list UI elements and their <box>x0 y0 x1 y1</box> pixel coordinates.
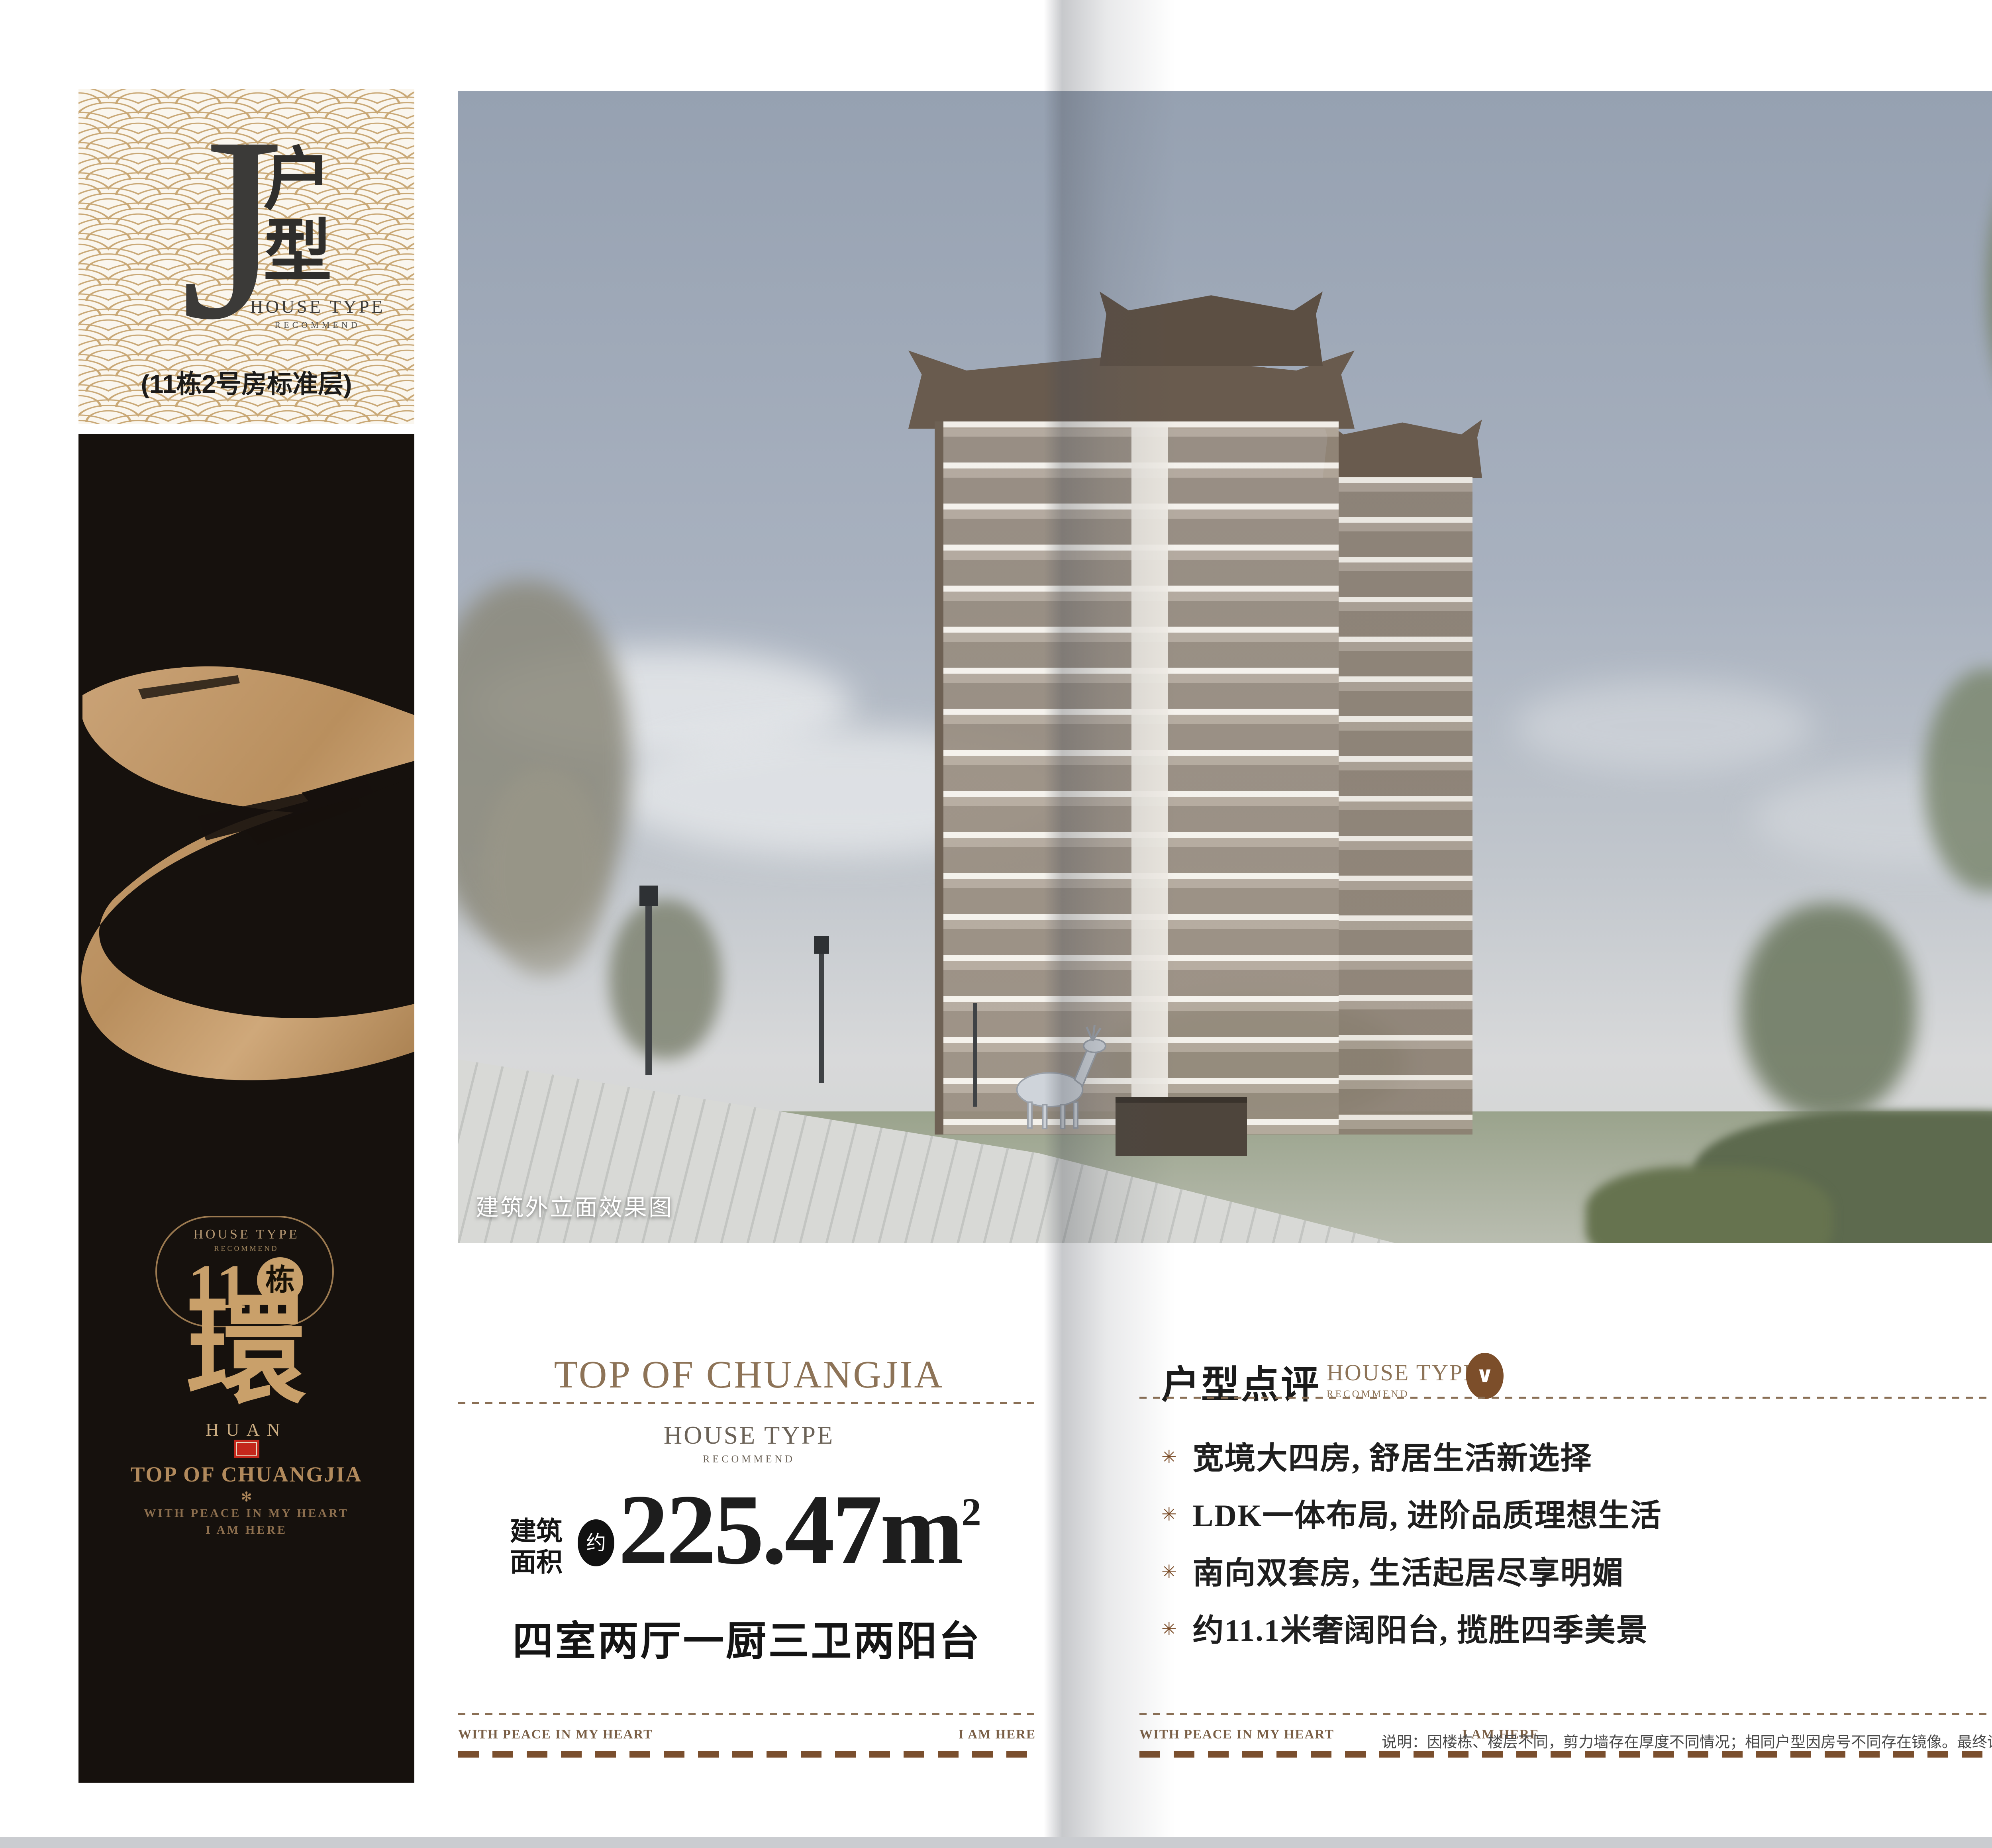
tower-white-spine <box>1131 421 1168 1135</box>
photo-caption: 建筑外立面效果图 <box>476 1189 673 1222</box>
deer-sculpture-small <box>1000 1019 1120 1131</box>
divider <box>1139 1713 1992 1715</box>
lamp-head <box>814 936 829 954</box>
house-type-name: 户型 <box>260 145 335 288</box>
footer-left: WITH PEACE IN MY HEART <box>458 1727 653 1742</box>
brand-title: TOP OF CHUANGJIA <box>462 1352 1036 1397</box>
residential-tower <box>908 290 1482 1150</box>
divider <box>458 1402 1036 1404</box>
review-title: 户型点评 <box>1161 1354 1321 1409</box>
asterisk-icon: ✳ <box>1161 1446 1177 1467</box>
tower-entrance <box>1116 1097 1247 1156</box>
footer-slogan: WITH PEACE IN MY HEART I AM HERE <box>458 1727 1036 1742</box>
banner-slogan-2: I AM HERE <box>78 1523 414 1537</box>
brochure-spread: J 户型 HOUSE TYPE RECOMMEND (11栋2号房标准层) HO… <box>0 0 1992 1848</box>
house-type-label: HOUSE TYPE <box>462 1421 1036 1450</box>
tower-roof-penthouse <box>1100 290 1323 366</box>
house-type-en: HOUSE TYPE <box>234 296 401 317</box>
asterisk-icon: ✳ <box>1161 1504 1177 1525</box>
recommend-label: RECOMMEND <box>462 1453 1036 1465</box>
calligraphy-huan: 環 <box>78 1287 414 1418</box>
lamp-head <box>639 886 658 906</box>
tree <box>610 900 721 1059</box>
mirror-note: 说明：因楼栋、楼层不同，剪力墙存在厚度不同情况；相同户型因房号不同存在镜像。最终… <box>1382 1730 1992 1752</box>
review-bullet: ✳约11.1米奢阔阳台, 揽胜四季美景 <box>1161 1605 1992 1650</box>
divider <box>1139 1397 1992 1399</box>
lamp-post <box>819 951 824 1083</box>
deer-sculpture-large <box>1956 935 1992 1238</box>
asterisk-icon: ✳ <box>1161 1561 1177 1582</box>
tree <box>1741 903 1916 1119</box>
tower-wing <box>1339 477 1472 1135</box>
area-row: 建筑面积 约 225.47m2 <box>510 1496 1036 1592</box>
house-type-recommend: RECOMMEND <box>234 320 401 330</box>
tree <box>1988 99 1992 477</box>
review-house-type: HOUSE TYPE <box>1327 1359 1479 1386</box>
lamp-post <box>973 1003 977 1107</box>
hedge <box>1586 1166 1833 1243</box>
banner-slogan-1: WITH PEACE IN MY HEART <box>78 1507 414 1520</box>
red-seal-icon <box>234 1440 259 1458</box>
area-value: 225.47m2 <box>618 1472 981 1587</box>
room-layout: 四室两厅一厨三卫两阳台 <box>458 1609 1036 1667</box>
area-label: 建筑面积 <box>510 1515 563 1578</box>
divider-heavy <box>458 1751 1036 1758</box>
asterisk-icon: ✳ <box>1161 1619 1177 1639</box>
gold-brush-stroke <box>78 538 414 1135</box>
tree <box>482 768 606 975</box>
brand-banner: HOUSE TYPE RECOMMEND 11 栋 環 HUAN TOP OF … <box>78 434 414 1783</box>
lamp-post <box>645 903 652 1075</box>
cloud <box>1514 680 1813 772</box>
star-icon: ✻ <box>78 1489 414 1505</box>
banner-house-type: HOUSE TYPE <box>78 1227 414 1242</box>
chevron-down-icon: ∨ <box>1466 1353 1504 1399</box>
banner-brand: TOP OF CHUANGJIA <box>78 1462 414 1487</box>
huan-pinyin: HUAN <box>78 1419 414 1440</box>
divider-heavy <box>1139 1751 1992 1758</box>
review-bullet: ✳宽境大四房, 舒居生活新选择 <box>1161 1433 1992 1478</box>
house-type-card: J 户型 HOUSE TYPE RECOMMEND (11栋2号房标准层) <box>78 89 414 424</box>
review-bullet: ✳南向双套房, 生活起居尽享明媚 <box>1161 1548 1992 1593</box>
house-type-subtitle: (11栋2号房标准层) <box>94 364 398 400</box>
building-render-photo: 建筑外立面效果图 <box>458 91 1992 1243</box>
footer-right: I AM HERE <box>959 1727 1036 1742</box>
divider <box>458 1713 1036 1715</box>
approx-badge: 约 <box>578 1519 614 1566</box>
review-bullet: ✳LDK一体布局, 进阶品质理想生活 <box>1161 1491 1992 1535</box>
